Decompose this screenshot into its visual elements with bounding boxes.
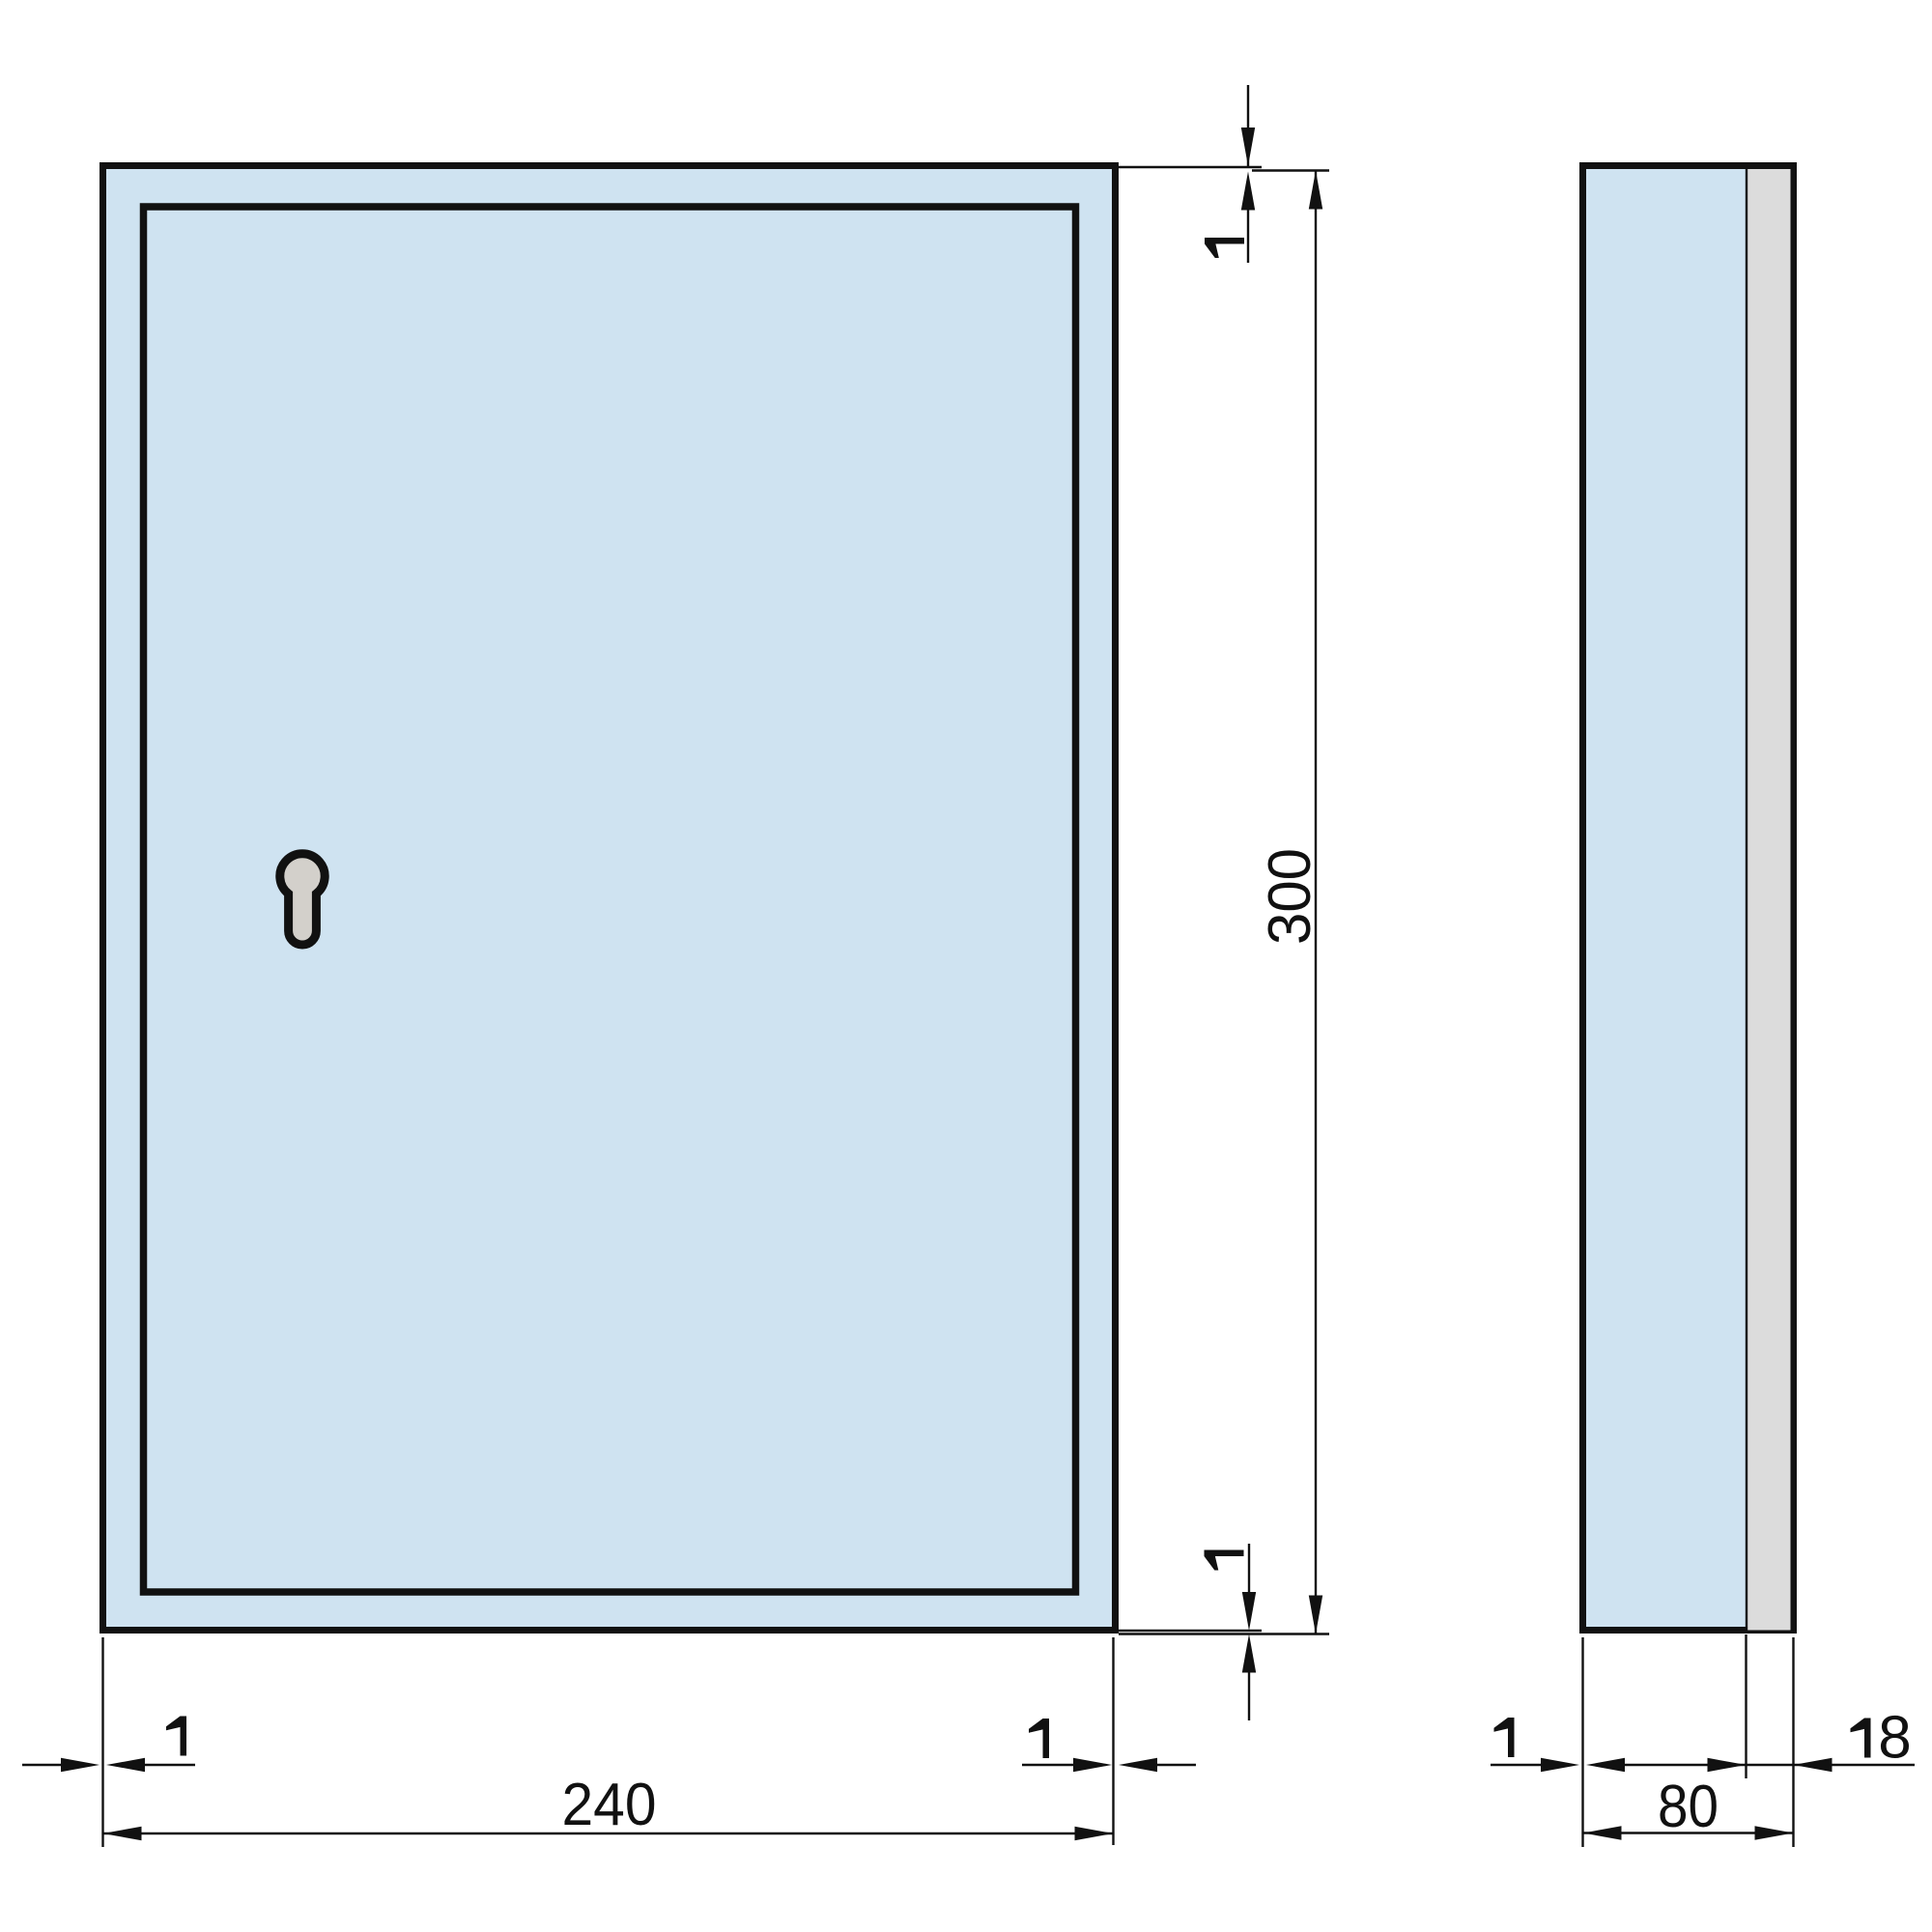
svg-text:300: 300 [1257,848,1323,945]
svg-text:80: 80 [1658,1774,1719,1840]
svg-text:8: 8 [1878,1705,1911,1772]
svg-text:240: 240 [562,1772,657,1838]
